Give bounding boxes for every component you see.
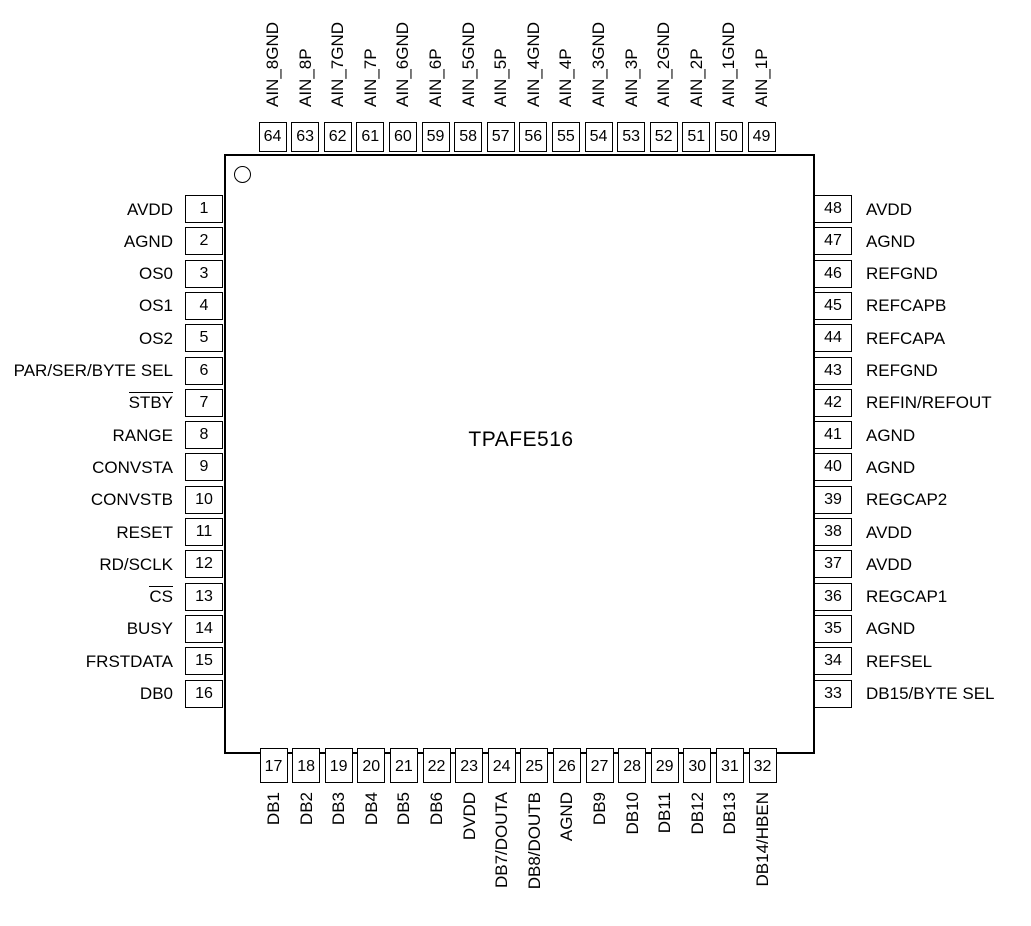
pin-box-19: 19	[325, 748, 353, 783]
pin-label-39: REGCAP2	[866, 489, 947, 510]
pin-box-53: 53	[617, 122, 645, 152]
pin-label-7: STBY	[129, 392, 173, 413]
pin-label-1: AVDD	[127, 199, 173, 220]
pin-label-2: AGND	[124, 231, 173, 252]
pin-label-19: DB3	[328, 792, 349, 926]
pin-label-35: AGND	[866, 618, 915, 639]
pin-box-20: 20	[357, 748, 385, 783]
pin-box-2: 2	[185, 227, 223, 255]
pin-label-37: AVDD	[866, 554, 912, 575]
pin-label-6: PAR/SER/BYTE SEL	[14, 360, 173, 381]
pin-box-57: 57	[487, 122, 515, 152]
pin-box-33: 33	[814, 680, 852, 708]
pin-label-54: AIN_3GND	[588, 0, 609, 107]
pin-label-40: AGND	[866, 457, 915, 478]
pin-label-15: FRSTDATA	[86, 651, 173, 672]
pin-box-37: 37	[814, 550, 852, 578]
chip-body	[224, 154, 815, 754]
pin-label-62: AIN_7GND	[327, 0, 348, 107]
pin-box-58: 58	[454, 122, 482, 152]
pin-box-47: 47	[814, 227, 852, 255]
pin-box-49: 49	[748, 122, 776, 152]
pin-label-4: OS1	[139, 295, 173, 316]
pin-box-16: 16	[185, 680, 223, 708]
pin-label-41: AGND	[866, 425, 915, 446]
pin-label-49: AIN_1P	[751, 0, 772, 107]
pin-box-32: 32	[749, 748, 777, 783]
pin-box-10: 10	[185, 486, 223, 514]
pin-box-8: 8	[185, 421, 223, 449]
pin-box-22: 22	[423, 748, 451, 783]
pin-label-20: DB4	[361, 792, 382, 926]
pin-label-24: DB7/DOUTA	[491, 792, 512, 926]
pin-box-17: 17	[260, 748, 288, 783]
pin-label-63: AIN_8P	[295, 0, 316, 107]
pin-label-11: RESET	[116, 522, 173, 543]
pin-label-22: DB6	[426, 792, 447, 926]
pin-label-46: REFGND	[866, 263, 938, 284]
pin-box-24: 24	[488, 748, 516, 783]
pin-box-40: 40	[814, 453, 852, 481]
pin-box-64: 64	[259, 122, 287, 152]
pin-label-56: AIN_4GND	[523, 0, 544, 107]
pin-box-42: 42	[814, 389, 852, 417]
pin-label-53: AIN_3P	[621, 0, 642, 107]
pin-box-38: 38	[814, 518, 852, 546]
pin-label-36: REGCAP1	[866, 586, 947, 607]
pin-label-47: AGND	[866, 231, 915, 252]
pin-label-55: AIN_4P	[555, 0, 576, 107]
pin-box-1: 1	[185, 195, 223, 223]
pin-box-59: 59	[422, 122, 450, 152]
pin-label-27: DB9	[589, 792, 610, 926]
pin-label-60: AIN_6GND	[392, 0, 413, 107]
pin-box-29: 29	[651, 748, 679, 783]
pin-box-14: 14	[185, 615, 223, 643]
pin-label-29: DB11	[654, 792, 675, 926]
pin-box-44: 44	[814, 324, 852, 352]
pin-box-56: 56	[519, 122, 547, 152]
pin-label-16: DB0	[140, 683, 173, 704]
pin-box-28: 28	[618, 748, 646, 783]
pin-box-15: 15	[185, 647, 223, 675]
pin-box-23: 23	[455, 748, 483, 783]
pin-box-39: 39	[814, 486, 852, 514]
pin-box-9: 9	[185, 453, 223, 481]
pin-label-52: AIN_2GND	[653, 0, 674, 107]
pin-box-45: 45	[814, 292, 852, 320]
pin-label-14: BUSY	[127, 618, 173, 639]
pin-box-12: 12	[185, 550, 223, 578]
pin-label-13: CS	[149, 586, 173, 607]
pin-box-50: 50	[715, 122, 743, 152]
pin-label-23: DVDD	[459, 792, 480, 926]
pin-box-41: 41	[814, 421, 852, 449]
pin-label-59: AIN_6P	[425, 0, 446, 107]
pin-box-27: 27	[586, 748, 614, 783]
pin-label-43: REFGND	[866, 360, 938, 381]
pin-label-8: RANGE	[113, 425, 173, 446]
pin-box-30: 30	[683, 748, 711, 783]
pin-box-21: 21	[390, 748, 418, 783]
pin-box-6: 6	[185, 357, 223, 385]
pin-1-indicator-icon	[234, 166, 251, 183]
pin-label-64: AIN_8GND	[262, 0, 283, 107]
chip-title: TPAFE516	[468, 428, 573, 452]
pin-label-50: AIN_1GND	[718, 0, 739, 107]
pin-label-28: DB10	[622, 792, 643, 926]
pin-label-21: DB5	[393, 792, 414, 926]
pin-label-51: AIN_2P	[686, 0, 707, 107]
pin-box-61: 61	[356, 122, 384, 152]
pin-box-31: 31	[716, 748, 744, 783]
pin-label-18: DB2	[296, 792, 317, 926]
pin-box-18: 18	[292, 748, 320, 783]
pin-box-46: 46	[814, 260, 852, 288]
pin-box-52: 52	[650, 122, 678, 152]
pin-label-3: OS0	[139, 263, 173, 284]
pin-label-32: DB14/HBEN	[752, 792, 773, 926]
pin-label-26: AGND	[556, 792, 577, 926]
pin-label-10: CONVSTB	[91, 489, 173, 510]
pin-box-55: 55	[552, 122, 580, 152]
pin-box-48: 48	[814, 195, 852, 223]
pin-box-60: 60	[389, 122, 417, 152]
pin-label-44: REFCAPA	[866, 328, 945, 349]
pin-box-3: 3	[185, 260, 223, 288]
pin-label-34: REFSEL	[866, 651, 932, 672]
pin-label-61: AIN_7P	[360, 0, 381, 107]
pin-box-7: 7	[185, 389, 223, 417]
pin-box-43: 43	[814, 357, 852, 385]
pin-box-35: 35	[814, 615, 852, 643]
pin-label-9: CONVSTA	[92, 457, 173, 478]
pin-box-26: 26	[553, 748, 581, 783]
pin-label-58: AIN_5GND	[458, 0, 479, 107]
pin-label-57: AIN_5P	[490, 0, 511, 107]
pin-label-45: REFCAPB	[866, 295, 946, 316]
pin-label-48: AVDD	[866, 199, 912, 220]
pin-label-33: DB15/BYTE SEL	[866, 683, 995, 704]
pin-box-11: 11	[185, 518, 223, 546]
pin-box-54: 54	[585, 122, 613, 152]
pin-box-34: 34	[814, 647, 852, 675]
pin-box-51: 51	[682, 122, 710, 152]
pin-label-5: OS2	[139, 328, 173, 349]
pin-box-36: 36	[814, 583, 852, 611]
pin-label-38: AVDD	[866, 522, 912, 543]
pin-box-25: 25	[520, 748, 548, 783]
pin-box-4: 4	[185, 292, 223, 320]
pin-label-31: DB13	[719, 792, 740, 926]
pin-box-5: 5	[185, 324, 223, 352]
pin-box-63: 63	[291, 122, 319, 152]
pin-box-13: 13	[185, 583, 223, 611]
pin-label-30: DB12	[687, 792, 708, 926]
pinout-diagram: TPAFE516 1AVDD2AGND3OS04OS15OS26PAR/SER/…	[0, 0, 1031, 926]
pin-label-42: REFIN/REFOUT	[866, 392, 992, 413]
pin-label-17: DB1	[263, 792, 284, 926]
pin-label-25: DB8/DOUTB	[524, 792, 545, 926]
pin-label-12: RD/SCLK	[99, 554, 173, 575]
pin-box-62: 62	[324, 122, 352, 152]
